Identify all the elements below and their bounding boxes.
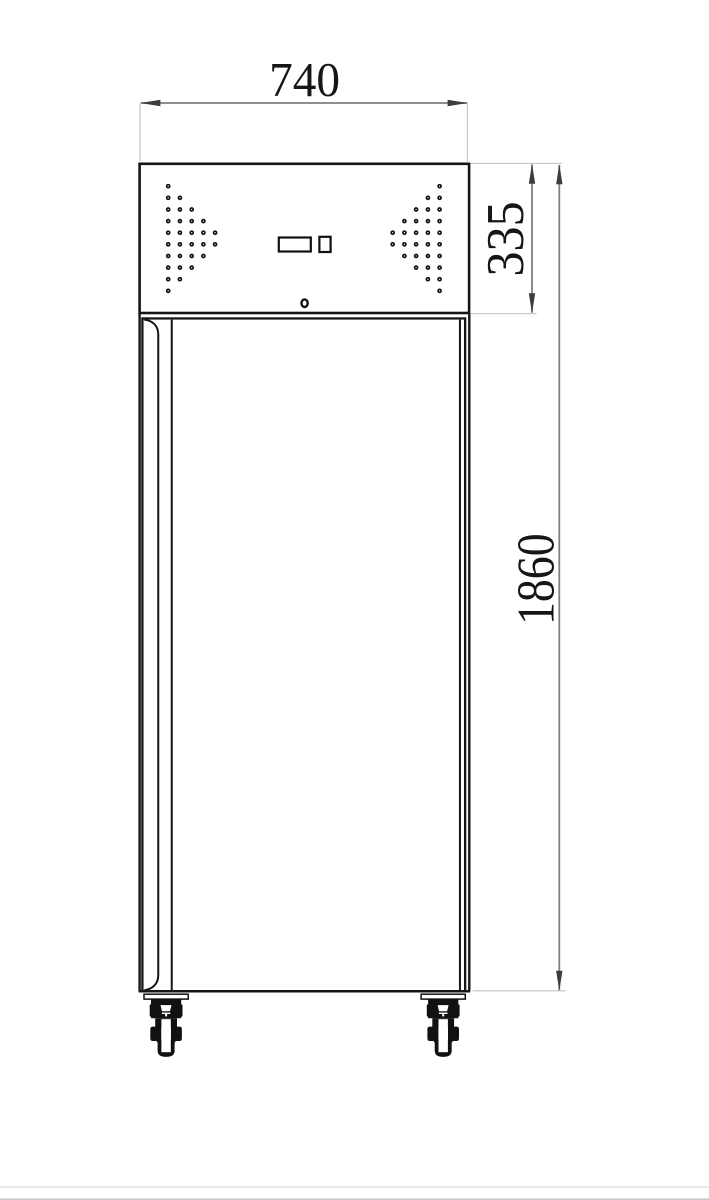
svg-text:335: 335 bbox=[477, 201, 535, 276]
svg-text:740: 740 bbox=[269, 54, 340, 107]
svg-text:1860: 1860 bbox=[506, 533, 566, 625]
